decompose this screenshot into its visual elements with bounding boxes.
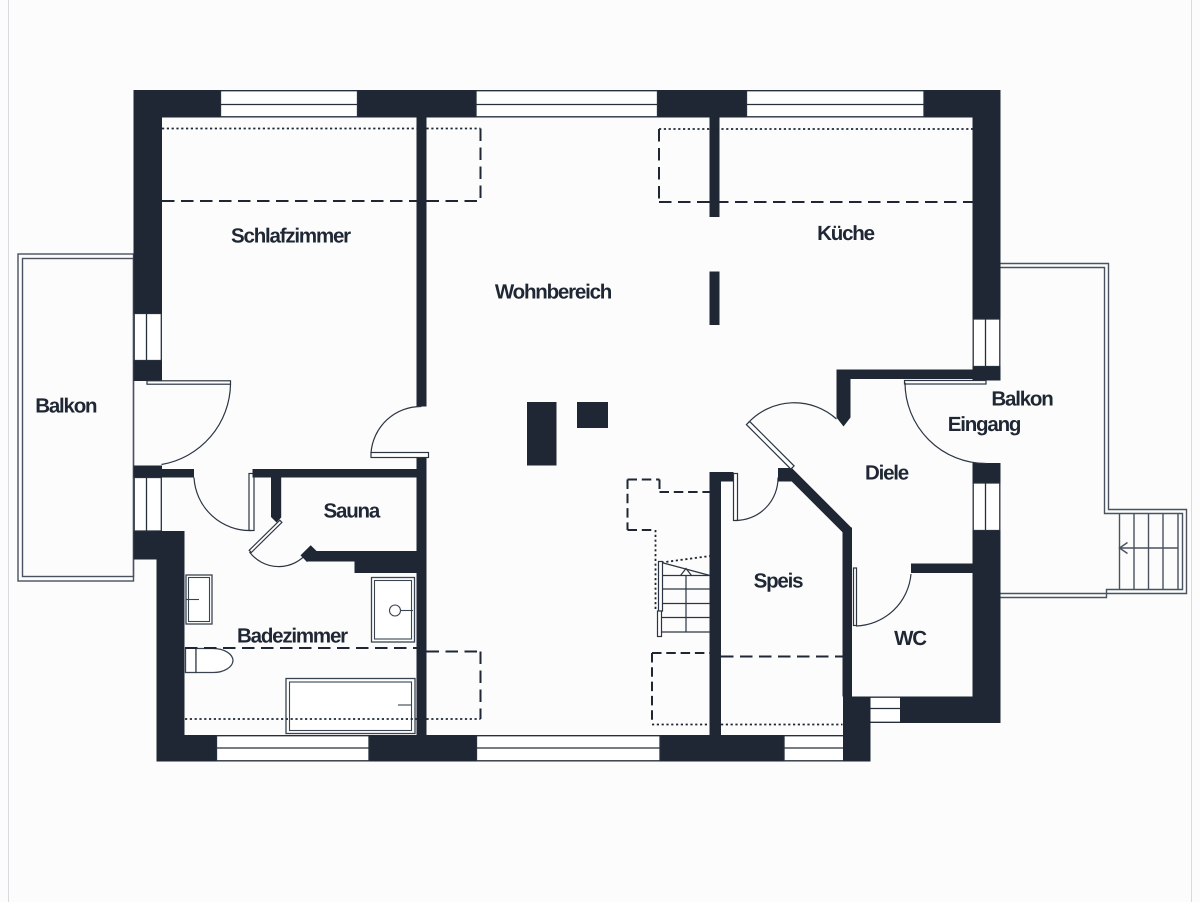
svg-text:Balkon: Balkon (991, 388, 1053, 411)
svg-text:Badezimmer: Badezimmer (237, 624, 348, 647)
svg-text:Speis: Speis (754, 569, 803, 592)
svg-text:Küche: Küche (817, 222, 874, 245)
svg-text:Sauna: Sauna (324, 500, 381, 523)
svg-text:Schlafzimmer: Schlafzimmer (231, 224, 351, 247)
svg-text:Diele: Diele (865, 462, 909, 485)
svg-text:Wohnbereich: Wohnbereich (495, 281, 612, 304)
svg-text:Eingang: Eingang (948, 413, 1021, 436)
svg-text:WC: WC (894, 627, 927, 650)
svg-text:Balkon: Balkon (35, 395, 97, 418)
